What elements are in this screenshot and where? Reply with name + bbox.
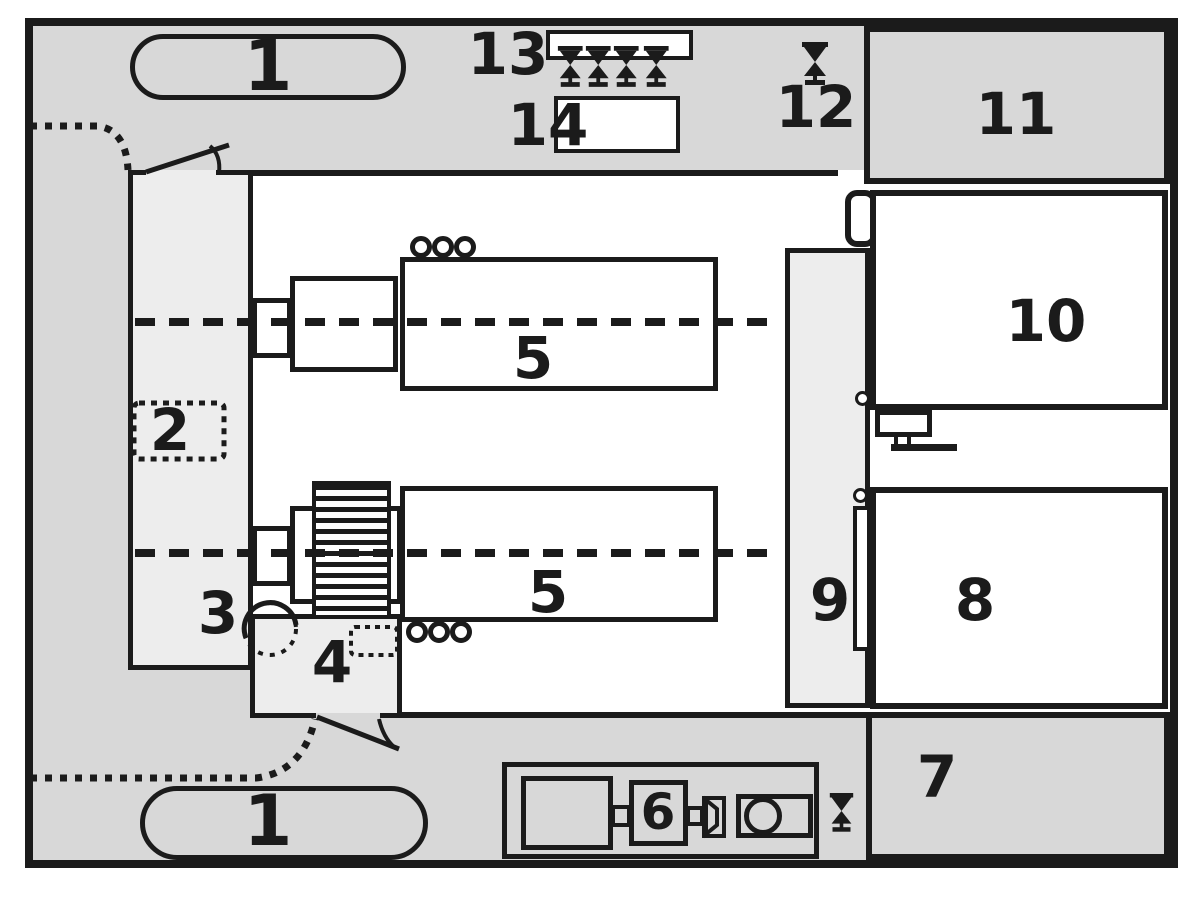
- zone-5-lower-label: 5: [528, 563, 568, 621]
- zone-8-label: 8: [955, 571, 995, 629]
- zone-12-label: 12: [776, 78, 857, 136]
- zone-10-label: 10: [1006, 292, 1087, 350]
- vent-circle: [406, 621, 428, 643]
- unit5-lower-centerline: [135, 549, 775, 557]
- console-base: [891, 444, 957, 451]
- vent-circle: [450, 621, 472, 643]
- vent-circle: [410, 236, 432, 258]
- port-circle: [853, 488, 868, 503]
- floor-plan-diagram: 1 13 14 12 11 2 5 5 3 4 9 10 8 6 7 1: [0, 0, 1200, 904]
- zone-7-label: 7: [917, 748, 957, 806]
- vent-circle: [428, 621, 450, 643]
- instrument-console: [875, 410, 932, 437]
- room-7: [866, 712, 1170, 860]
- zone-14-label: 14: [508, 96, 589, 154]
- zone-1-top-label: 1: [244, 31, 293, 101]
- zone-13-label: 13: [468, 25, 549, 83]
- wall-cabinet: [853, 506, 871, 651]
- zone-1-bottom-label: 1: [244, 786, 293, 856]
- zone-4-label: 4: [312, 633, 352, 691]
- pump-train-tank: [521, 776, 613, 850]
- zone-2-label: 2: [150, 401, 190, 459]
- pump-train-reducer: [702, 796, 726, 838]
- room-8: [870, 487, 1168, 709]
- zone-3-label: 3: [198, 584, 238, 642]
- pump-train-link: [611, 805, 631, 827]
- zone-9-label: 9: [810, 571, 850, 629]
- zone-11-label: 11: [976, 85, 1057, 143]
- zone-5-upper-label: 5: [513, 329, 553, 387]
- door-opening-bottom: [316, 713, 380, 718]
- unit5-upper-coupling: [252, 298, 292, 358]
- pump-impeller-circle: [744, 797, 782, 835]
- vent-circle: [432, 236, 454, 258]
- valve-manifold-13-box: [546, 30, 693, 60]
- vent-circle: [454, 236, 476, 258]
- zone-6-label: 6: [641, 787, 676, 837]
- port-circle: [855, 391, 870, 406]
- unit5-upper-centerline: [135, 318, 775, 326]
- door-opening-top: [146, 170, 216, 176]
